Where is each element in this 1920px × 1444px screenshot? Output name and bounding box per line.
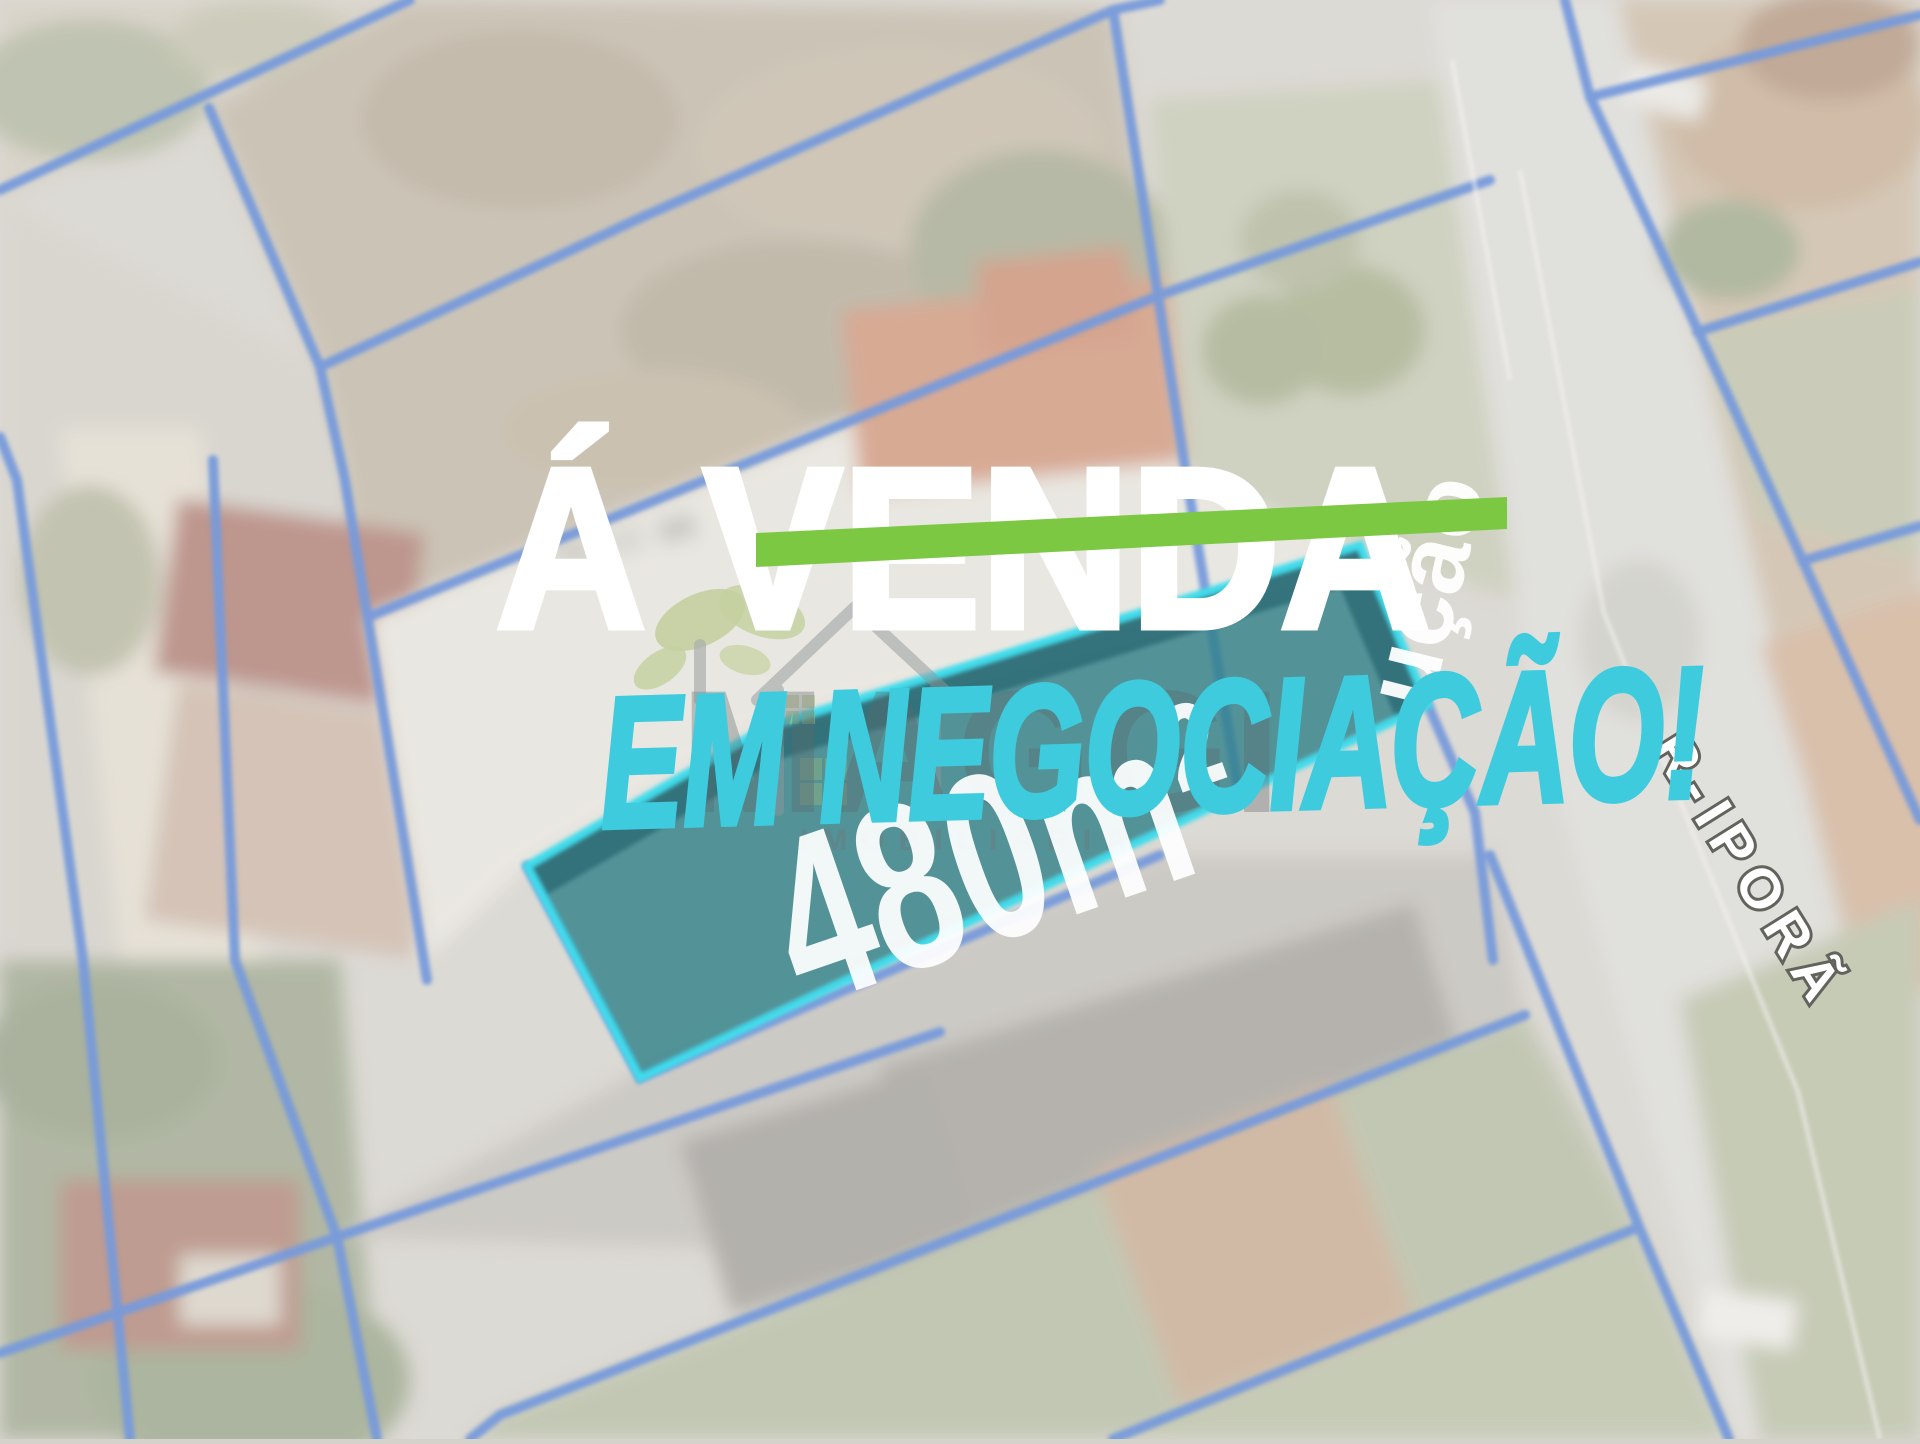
svg-text:EM NEGOCIAÇÃO!: EM NEGOCIAÇÃO! <box>597 630 1707 868</box>
